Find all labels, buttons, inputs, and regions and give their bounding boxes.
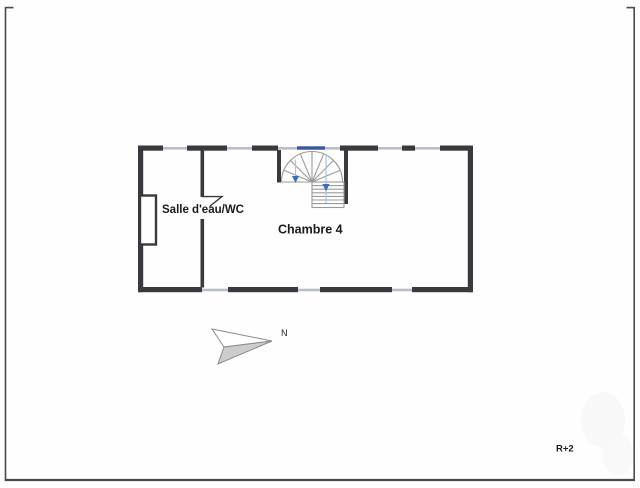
window: [227, 147, 252, 150]
watermark: [581, 392, 634, 475]
stair-wall-left: [277, 150, 281, 183]
floor-plan-drawing: Salle d'eau/WC Chambre 4 N R+2: [0, 0, 640, 488]
window: [415, 147, 440, 150]
stair-wall-right: [344, 150, 348, 204]
north-label: N: [281, 328, 288, 338]
window: [378, 147, 402, 150]
interior-wall: [201, 150, 205, 288]
window-blue: [297, 146, 325, 149]
stair-fan: [282, 151, 343, 182]
wall-right: [468, 146, 473, 293]
spiral-staircase: [277, 150, 348, 208]
level-label: R+2: [556, 444, 574, 455]
room-label-salle-deau: Salle d'eau/WC: [162, 204, 244, 216]
north-arrow-icon: [212, 329, 272, 364]
window: [202, 289, 228, 292]
stair-arrow-down-icon: [322, 184, 329, 191]
window: [392, 289, 412, 292]
window: [298, 289, 320, 292]
page-frame: [5, 7, 635, 481]
floor-plan-page: Salle d'eau/WC Chambre 4 N R+2: [0, 0, 640, 488]
room-label-chambre-4: Chambre 4: [278, 223, 343, 237]
window: [163, 147, 187, 150]
wall-alcove: [140, 196, 156, 245]
